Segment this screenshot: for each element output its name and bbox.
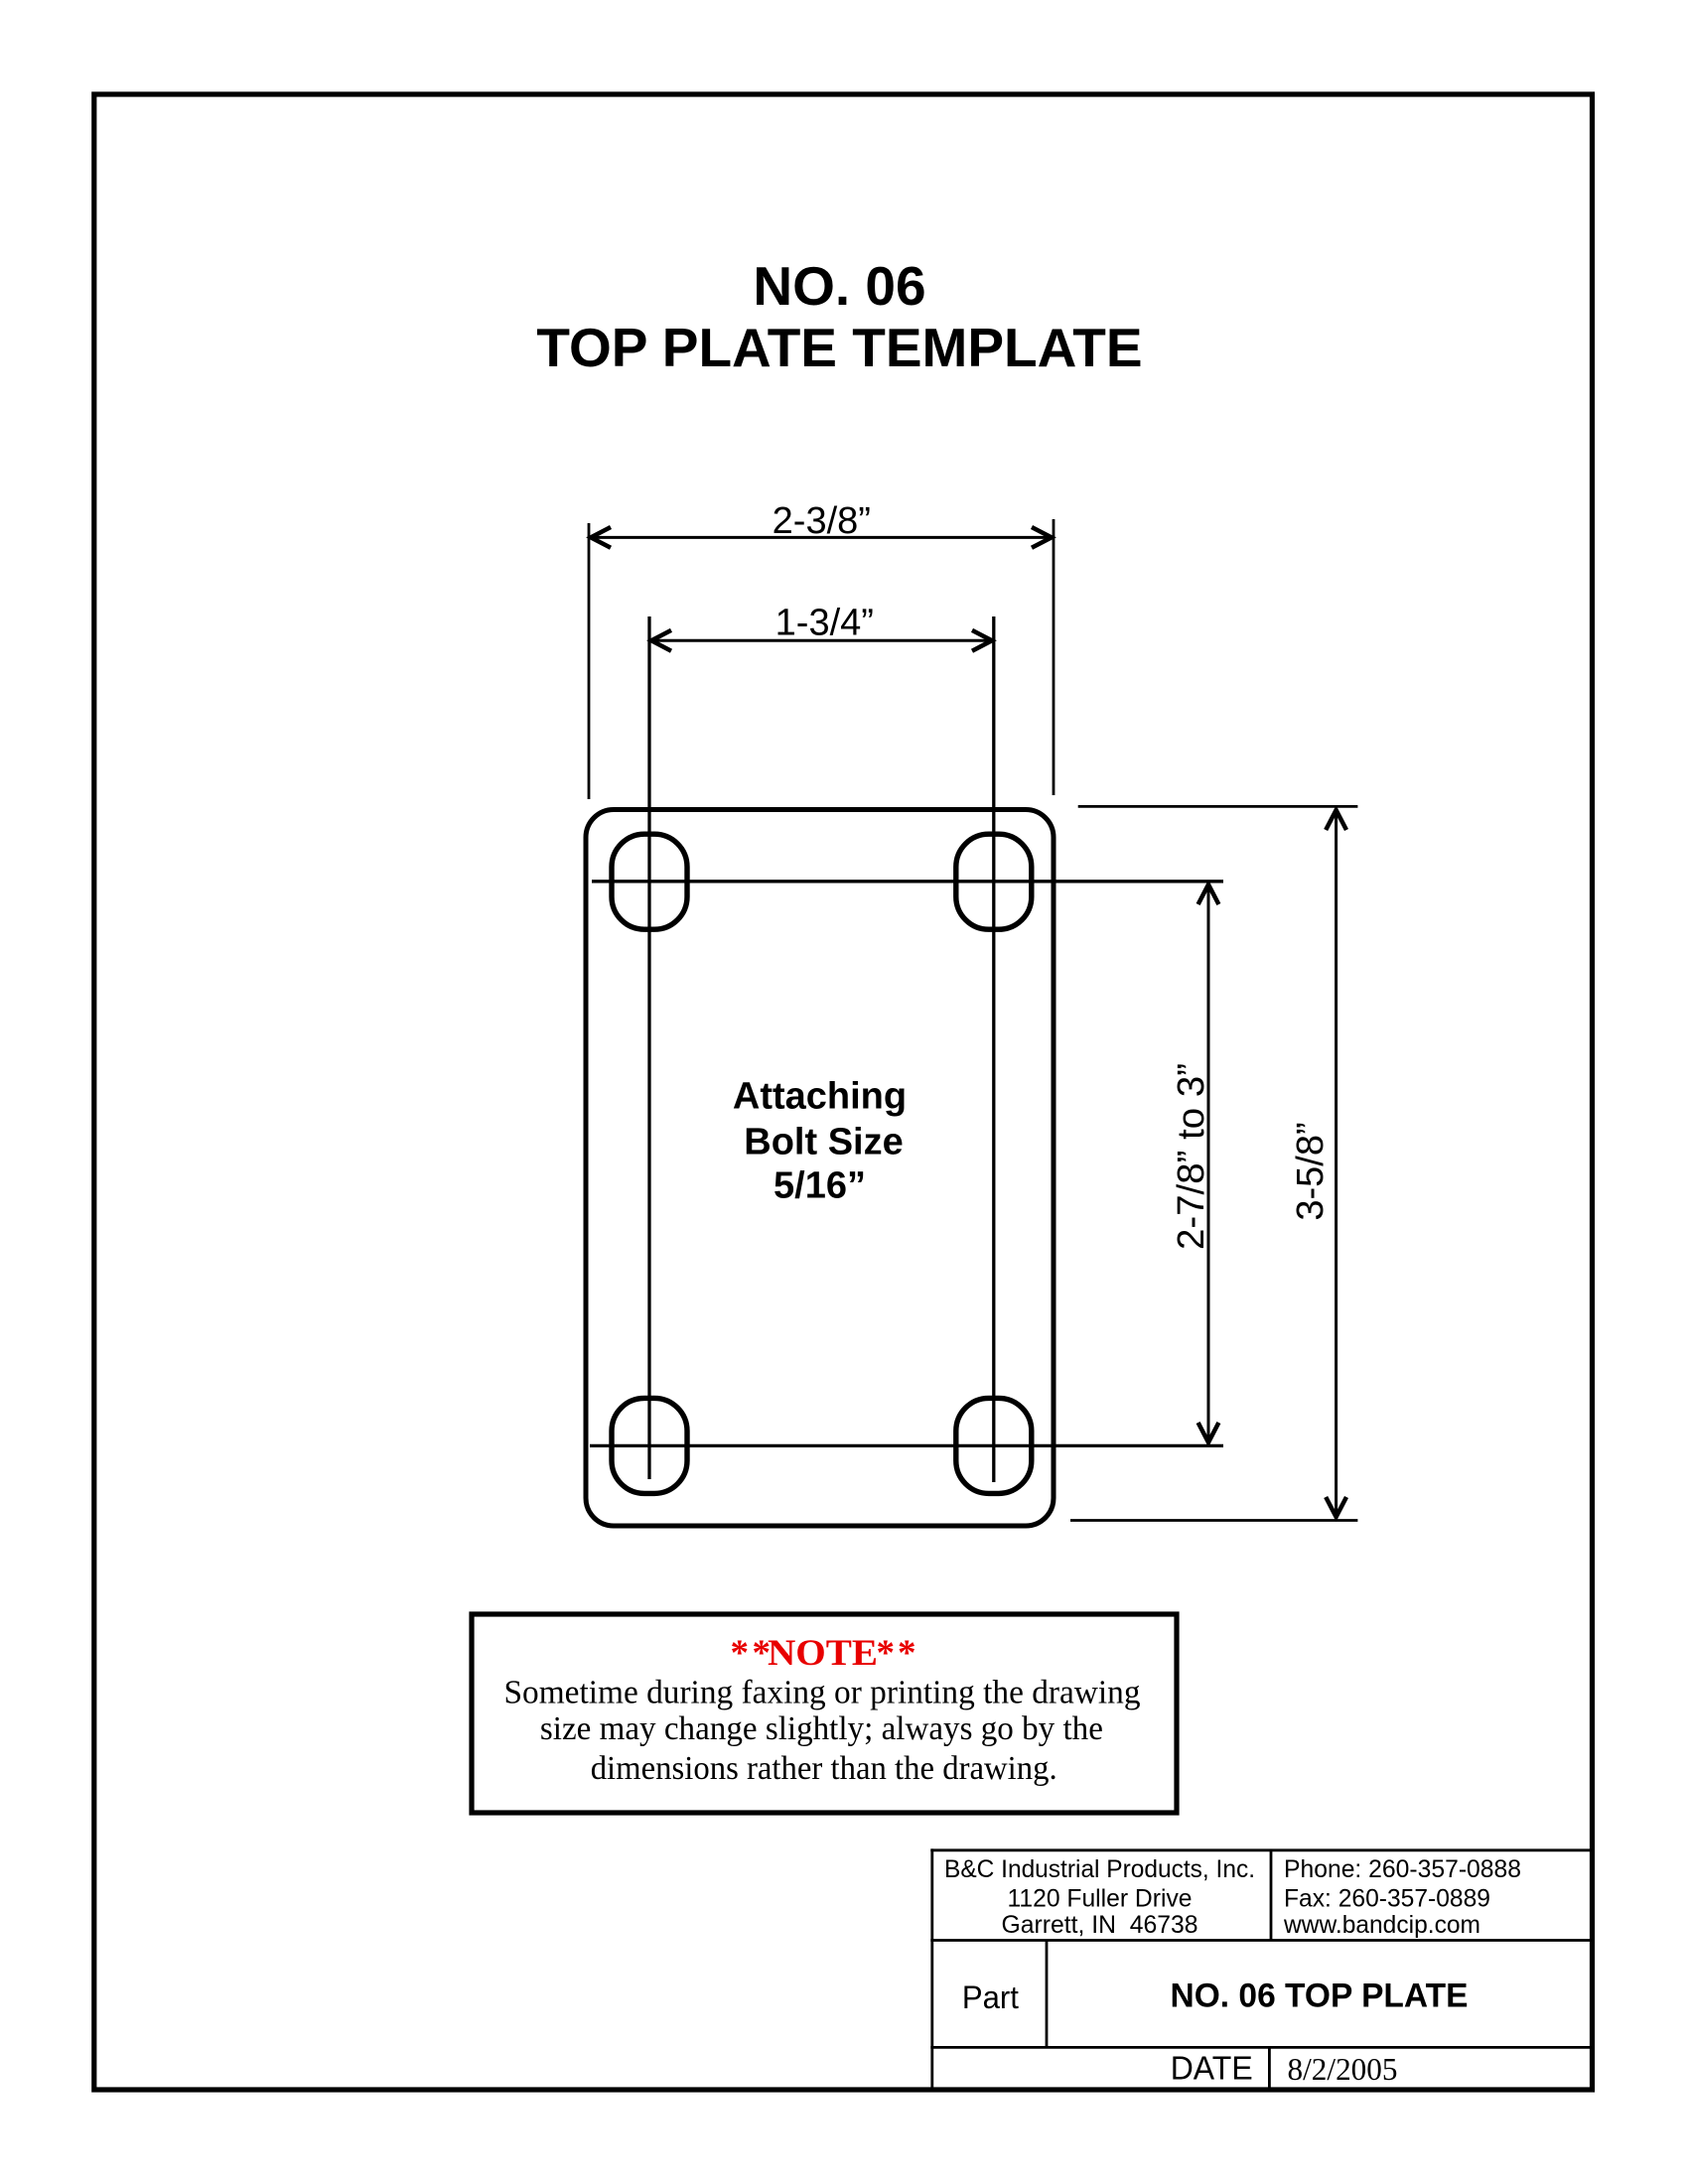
svg-text:NOTE: NOTE: [768, 1633, 878, 1674]
svg-text:1-3/4”: 1-3/4”: [775, 603, 874, 644]
svg-text:dimensions rather than the dra: dimensions rather than the drawing.: [591, 1750, 1057, 1787]
svg-text:8/2/2005: 8/2/2005: [1288, 2051, 1398, 2087]
svg-text:Attaching: Attaching: [733, 1076, 907, 1118]
svg-text:NO. 06 TOP PLATE: NO. 06 TOP PLATE: [1171, 1977, 1469, 2014]
svg-text:2-7/8” to 3”: 2-7/8” to 3”: [1171, 1063, 1212, 1250]
svg-text:B&C Industrial Products, Inc.: B&C Industrial Products, Inc.: [944, 1855, 1255, 1883]
svg-text:www.bandcip.com: www.bandcip.com: [1283, 1911, 1480, 1939]
svg-text:Fax: 260-357-0889: Fax: 260-357-0889: [1284, 1884, 1490, 1912]
svg-text:TOP PLATE TEMPLATE: TOP PLATE TEMPLATE: [536, 317, 1142, 378]
svg-text:*: *: [877, 1633, 896, 1674]
svg-text:Part: Part: [962, 1979, 1019, 2015]
svg-text:*: *: [898, 1633, 916, 1674]
svg-text:3-5/8”: 3-5/8”: [1290, 1122, 1332, 1220]
svg-text:*: *: [731, 1633, 750, 1674]
svg-text:NO. 06: NO. 06: [753, 255, 925, 317]
svg-text:Phone: 260-357-0888: Phone: 260-357-0888: [1284, 1855, 1521, 1883]
svg-text:Sometime during faxing or prin: Sometime during faxing or printing the d…: [504, 1675, 1141, 1711]
svg-text:Bolt Size: Bolt Size: [744, 1122, 903, 1163]
svg-text:5/16”: 5/16”: [774, 1165, 866, 1207]
svg-text:1120 Fuller Drive: 1120 Fuller Drive: [1008, 1884, 1193, 1912]
svg-text:2-3/8”: 2-3/8”: [773, 500, 871, 542]
svg-text:size may change slightly; alwa: size may change slightly; always go by t…: [540, 1710, 1103, 1747]
svg-text:DATE: DATE: [1171, 2050, 1253, 2087]
svg-text:Garrett, IN 46738: Garrett, IN 46738: [1002, 1911, 1198, 1939]
